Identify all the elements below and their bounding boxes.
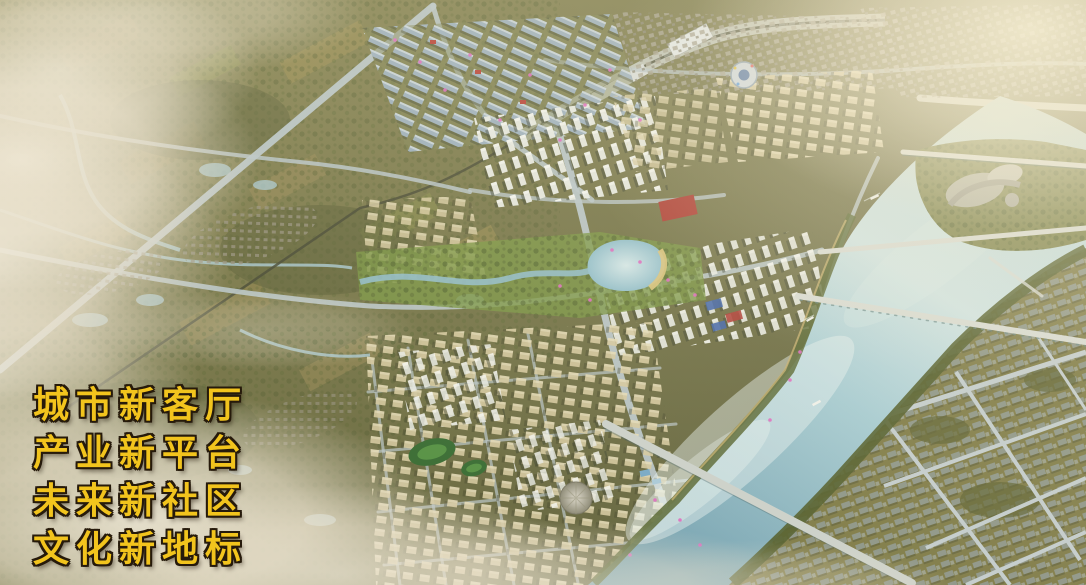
slogan-line-4: 文化新地标 — [33, 525, 248, 573]
masterplan-render: 城市新客厅 产业新平台 未来新社区 文化新地标 — [0, 0, 1086, 585]
slogan-line-3: 未来新社区 — [33, 477, 248, 525]
slogan-line-1: 城市新客厅 — [33, 381, 248, 429]
slogan-line-2: 产业新平台 — [33, 429, 248, 477]
slogan-overlay: 城市新客厅 产业新平台 未来新社区 文化新地标 — [33, 381, 248, 573]
